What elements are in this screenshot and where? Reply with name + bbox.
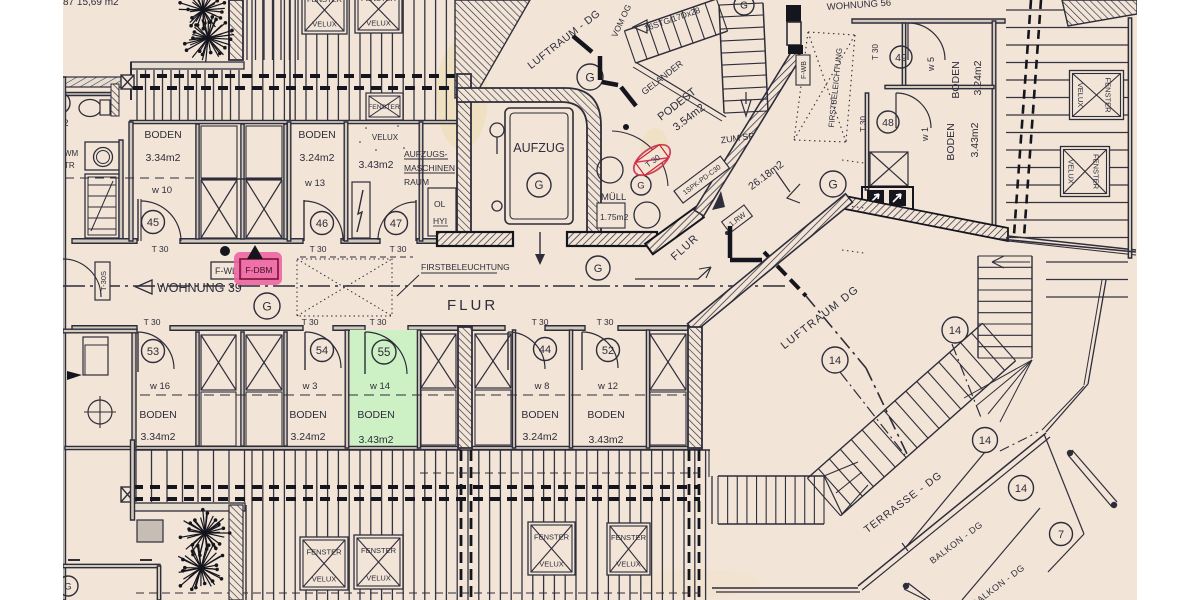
svg-text:1.75m2: 1.75m2 [600, 212, 629, 222]
svg-text:VELUX: VELUX [366, 573, 391, 582]
svg-text:3.24m2: 3.24m2 [299, 152, 334, 164]
svg-text:T 30: T 30 [144, 317, 161, 327]
svg-text:T 30: T 30 [310, 244, 327, 254]
svg-text:w 8: w 8 [534, 381, 550, 392]
svg-text:3.24m2: 3.24m2 [972, 60, 984, 95]
svg-text:45: 45 [147, 217, 159, 229]
svg-text:44: 44 [539, 344, 551, 356]
svg-text:F-DBM: F-DBM [246, 265, 273, 275]
svg-text:AUFZUGS-: AUFZUGS- [404, 149, 448, 159]
svg-text:T 30: T 30 [152, 244, 169, 254]
svg-text:RAUM: RAUM [404, 177, 429, 187]
svg-text:w 5: w 5 [926, 57, 936, 72]
svg-text:FENSTER: FENSTER [307, 0, 343, 4]
svg-text:3.34m2: 3.34m2 [145, 152, 180, 164]
svg-text:BODEN: BODEN [521, 409, 558, 421]
svg-text:3.43m2: 3.43m2 [358, 159, 393, 171]
svg-text:MASCHINEN: MASCHINEN [404, 163, 455, 173]
svg-text:FENSTER: FENSTER [306, 547, 342, 556]
svg-text:FENSTER: FENSTER [534, 532, 570, 541]
svg-text:VELUX: VELUX [1066, 159, 1075, 184]
svg-text:w 10: w 10 [151, 185, 172, 196]
svg-text:3.43m2: 3.43m2 [358, 434, 393, 446]
svg-text:T 30: T 30 [302, 317, 319, 327]
svg-text:FLUR: FLUR [447, 297, 498, 314]
svg-text:T 30: T 30 [597, 317, 614, 327]
svg-text:T 30: T 30 [390, 244, 407, 254]
svg-text:w 12: w 12 [597, 381, 618, 392]
svg-text:w 16: w 16 [149, 381, 170, 392]
svg-text:14: 14 [829, 355, 841, 367]
svg-text:WOHNUNG 39: WOHNUNG 39 [157, 281, 242, 295]
svg-text:G: G [740, 1, 748, 12]
svg-text:49: 49 [895, 52, 907, 64]
svg-text:55: 55 [378, 347, 391, 359]
svg-text:MÜLL: MÜLL [601, 192, 626, 203]
svg-text:HYI: HYI [433, 216, 447, 226]
svg-text:BODEN: BODEN [144, 129, 181, 141]
svg-text:BODEN: BODEN [357, 409, 394, 421]
svg-text:VELUX: VELUX [366, 18, 391, 27]
svg-text:T 30: T 30 [370, 317, 387, 327]
svg-text:3.24m2: 3.24m2 [522, 431, 557, 443]
svg-text:FENSTER: FENSTER [1104, 77, 1113, 113]
svg-text:47: 47 [390, 218, 402, 230]
svg-text:VELUX: VELUX [372, 133, 399, 142]
svg-text:14: 14 [1015, 483, 1027, 495]
svg-text:T 30: T 30 [532, 317, 549, 327]
svg-text:FENSTER: FENSTER [361, 546, 397, 555]
svg-text:7: 7 [1058, 529, 1064, 541]
svg-text:14: 14 [949, 325, 961, 337]
svg-text:3.43m2: 3.43m2 [969, 122, 981, 157]
svg-text:54: 54 [316, 345, 328, 357]
svg-text:G: G [594, 263, 603, 275]
svg-text:OL: OL [434, 199, 446, 209]
svg-text:F-WL: F-WL [215, 266, 237, 276]
svg-text:3.24m2: 3.24m2 [290, 431, 325, 443]
svg-text:FENSTER: FENSTER [1091, 154, 1100, 190]
svg-text:FENSTER: FENSTER [368, 104, 400, 111]
svg-text:BODEN: BODEN [139, 409, 176, 421]
svg-text:BODEN: BODEN [945, 123, 957, 160]
svg-text:T 30: T 30 [871, 44, 880, 60]
svg-text:w 3: w 3 [302, 381, 318, 392]
svg-text:52: 52 [602, 345, 614, 357]
svg-text:w 14: w 14 [369, 381, 390, 392]
svg-text:BODEN: BODEN [587, 409, 624, 421]
svg-text:BODEN: BODEN [950, 61, 962, 98]
svg-text:VELUX: VELUX [539, 560, 564, 569]
svg-text:FIRSTBELEUCHTUNG: FIRSTBELEUCHTUNG [421, 262, 510, 272]
svg-text:VELUX: VELUX [312, 575, 337, 584]
svg-text:87 15,69 m2: 87 15,69 m2 [63, 0, 119, 8]
svg-text:G: G [585, 70, 594, 84]
svg-text:G: G [828, 177, 837, 191]
svg-text:53: 53 [147, 346, 159, 358]
svg-text:w 1: w 1 [920, 127, 930, 142]
svg-text:G: G [637, 180, 644, 191]
svg-text:VELUX: VELUX [312, 19, 337, 28]
svg-text:AUFZUG: AUFZUG [513, 141, 564, 155]
svg-text:BODEN: BODEN [298, 129, 335, 141]
svg-text:VELUX: VELUX [1076, 83, 1085, 108]
svg-text:VELUX: VELUX [616, 560, 641, 569]
svg-text:48: 48 [882, 117, 894, 129]
svg-text:14: 14 [979, 435, 991, 447]
svg-text:3.34m2: 3.34m2 [140, 431, 175, 443]
svg-text:46: 46 [316, 218, 328, 230]
svg-text:G: G [535, 180, 544, 192]
svg-text:FENSTER: FENSTER [611, 533, 647, 542]
svg-text:G: G [64, 581, 71, 592]
svg-text:T 30: T 30 [859, 116, 868, 132]
svg-text:G: G [262, 299, 271, 313]
svg-text:F-WB: F-WB [801, 61, 808, 79]
svg-text:BODEN: BODEN [289, 409, 326, 421]
svg-text:FENSTER: FENSTER [361, 0, 397, 3]
svg-text:3.43m2: 3.43m2 [588, 434, 623, 446]
svg-text:w 13: w 13 [304, 178, 325, 189]
